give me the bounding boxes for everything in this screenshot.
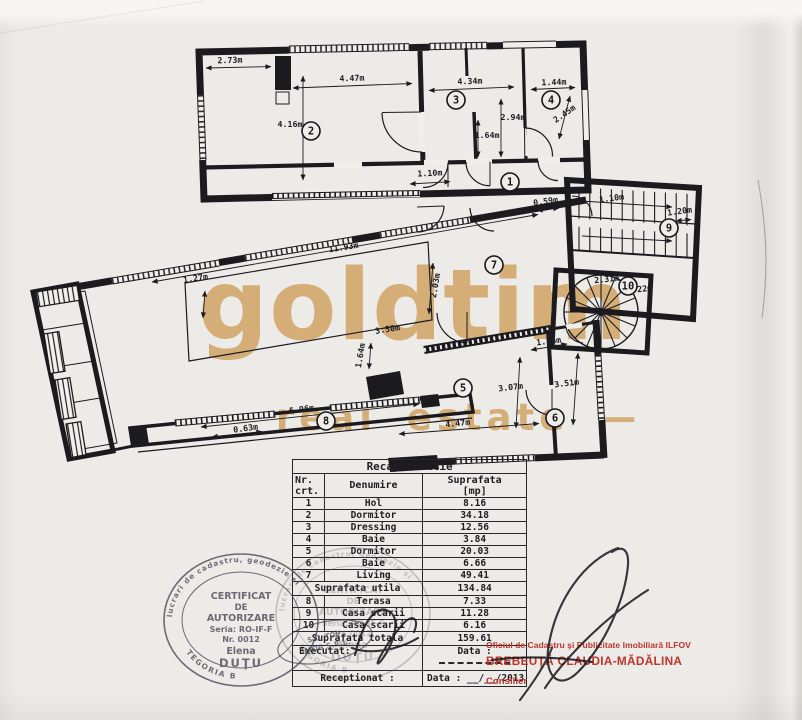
dimension-label: 1.64m: [475, 130, 500, 140]
room-name: Casa scarii: [325, 620, 423, 632]
room-name: Dormitor: [325, 510, 423, 522]
watermark-tagline: — real estate —: [204, 399, 641, 436]
stair-treads: [579, 187, 687, 257]
row-number: 10: [293, 620, 325, 632]
dimension-label: 3.07m: [498, 381, 524, 394]
area-value: 6.16: [423, 620, 527, 632]
dimension-label: 0.59m: [533, 194, 559, 207]
dimension-label: 3.51m: [554, 377, 580, 390]
watermark-word: goldtim: [198, 257, 629, 355]
area-value: 6.66: [423, 558, 527, 570]
dimension-labels: 2.73m4.47m4.34m1.44m4.16m2.94m1.64m2.45m…: [182, 55, 692, 435]
row-number: 7: [293, 570, 325, 582]
dimension-label: 4.16m: [278, 119, 303, 129]
svg-text:DUŢU: DUŢU: [219, 656, 263, 670]
room-number: 3: [453, 95, 459, 107]
room-number: 1: [507, 177, 513, 189]
dimension-label: 4.34m: [457, 76, 482, 87]
room-number: 4: [548, 95, 554, 107]
registry-role: Consilier: [486, 676, 691, 687]
table-row: 3Dressing12.56: [293, 522, 527, 534]
room-number-circle: [501, 173, 519, 191]
room-number-circle: [447, 91, 465, 109]
suprafata-totala-label: Suprafata totala: [293, 632, 423, 646]
executat-label: Executat:: [293, 646, 423, 671]
room-name: Casa scarii: [325, 608, 423, 620]
dimension-label: 2.45m: [551, 102, 577, 125]
table-row: 2Dormitor34.18: [293, 510, 527, 522]
dimension-label: 4.47m: [339, 73, 364, 84]
registry-office: Oficiul de Cadastru şi Publicitate Imobi…: [486, 640, 691, 650]
room-name: Living: [325, 570, 423, 582]
area-value: 12.56: [423, 522, 527, 534]
row-number: 5: [293, 546, 325, 558]
row-number: 9: [293, 608, 325, 620]
table-row: 5Dormitor20.03: [293, 546, 527, 558]
svg-text:AUTORIZARE: AUTORIZARE: [207, 613, 275, 624]
row-number: 4: [293, 534, 325, 546]
room-name: Baie: [325, 534, 423, 546]
dimension-label: 2.73m: [217, 55, 242, 66]
room-name: Hol: [325, 498, 423, 510]
paper-crease-right: [758, 180, 766, 318]
table-header-row: Nr.crt. Denumire Suprafata[mp]: [293, 474, 527, 498]
area-value: 3.84: [423, 534, 527, 546]
registry-block: Oficiul de Cadastru şi Publicitate Imobi…: [486, 640, 691, 687]
suprafata-utila-value: 134.84: [423, 582, 527, 596]
room-number: 2: [308, 126, 314, 138]
table-title: Recapitulatie: [293, 460, 527, 474]
col-header-suprafata: Suprafata[mp]: [423, 474, 527, 498]
room-number-circle: [302, 122, 320, 140]
area-value: 20.03: [423, 546, 527, 558]
svg-text:Elena: Elena: [226, 646, 255, 657]
table-row: 7Living49.41: [293, 570, 527, 582]
table-row: 1Hol8.16: [293, 498, 527, 510]
row-number: 2: [293, 510, 325, 522]
scanned-floor-plan-document: goldtim — real estate —: [0, 0, 802, 720]
row-number: 8: [293, 596, 325, 608]
room-number: 5: [460, 383, 466, 395]
area-value: 7.33: [423, 596, 527, 608]
room-name: Baie: [325, 558, 423, 570]
receptionat-label: Receptionat :: [293, 671, 423, 687]
area-value: 11.28: [423, 608, 527, 620]
dimension-label: 2.94m: [501, 112, 526, 122]
svg-text:Nr. 0012: Nr. 0012: [222, 635, 260, 644]
registry-name: BREBEUŢĂ CLAUDIA-MĂDĂLINA: [486, 654, 691, 668]
room-name: Terasa: [325, 596, 423, 608]
dimension-label: 1.10m: [417, 167, 442, 178]
room-number-circle: [660, 219, 678, 237]
table-row: 10Casa scarii6.16: [293, 620, 527, 632]
table-title-row: Recapitulatie: [293, 460, 527, 474]
upper-block: [198, 41, 590, 199]
row-number: 1: [293, 498, 325, 510]
room-number: 9: [666, 223, 672, 235]
col-header-denumire: Denumire: [325, 474, 423, 498]
area-value: 34.18: [423, 510, 527, 522]
svg-text:DE: DE: [235, 603, 248, 613]
row-number: 3: [293, 522, 325, 534]
area-value: 8.16: [423, 498, 527, 510]
row-number: 6: [293, 558, 325, 570]
col-header-nr: Nr.crt.: [293, 474, 325, 498]
room-number-circle: [542, 91, 560, 109]
room-number-circle: [454, 379, 472, 397]
svg-text:Seria: RO-IF-F: Seria: RO-IF-F: [210, 625, 273, 634]
table-row: 6Baie6.66: [293, 558, 527, 570]
paper-crease: [0, 0, 204, 35]
room-name: Dormitor: [325, 546, 423, 558]
dimension-label: 1.10m: [599, 191, 625, 204]
area-value: 49.41: [423, 570, 527, 582]
dimension-label: 2.22m: [627, 283, 653, 296]
table-row: 4Baie3.84: [293, 534, 527, 546]
dimension-label: 1.44m: [541, 77, 566, 88]
suprafata-utila-row: Suprafata utila 134.84: [293, 582, 527, 596]
table-row: 8Terasa7.33: [293, 596, 527, 608]
room-name: Dressing: [325, 522, 423, 534]
dimension-label: 1.20m: [667, 204, 693, 217]
suprafata-utila-label: Suprafata utila: [293, 582, 423, 596]
table-row: 9Casa scarii11.28: [293, 608, 527, 620]
svg-text:CERTIFICAT: CERTIFICAT: [211, 591, 272, 602]
